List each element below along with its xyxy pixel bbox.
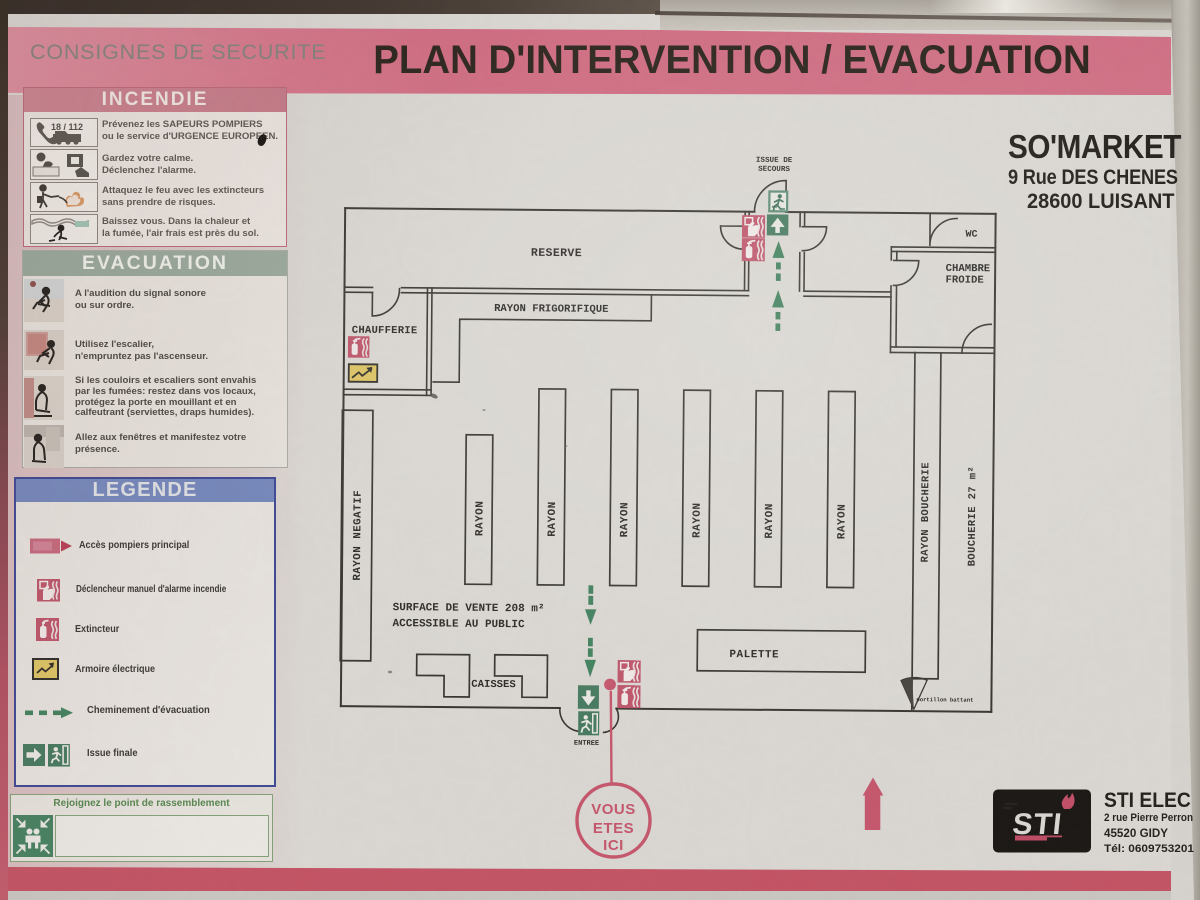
svg-text:FROIDE: FROIDE [946, 274, 984, 286]
svg-text:SECOURS: SECOURS [758, 166, 790, 174]
svg-text:RESERVE: RESERVE [531, 247, 582, 260]
svg-text:RAYON: RAYON [547, 501, 559, 537]
svg-text:ICI: ICI [603, 837, 624, 854]
svg-text:CHAMBRE: CHAMBRE [946, 263, 991, 275]
svg-text:RAYON FRIGORIFIQUE: RAYON FRIGORIFIQUE [494, 303, 609, 316]
svg-text:45520 GIDY: 45520 GIDY [1104, 827, 1168, 840]
svg-text:portillon battant: portillon battant [916, 696, 973, 703]
svg-text:RAYON: RAYON [836, 504, 848, 540]
svg-text:RAYON: RAYON [692, 502, 704, 538]
svg-text:ISSUE DE: ISSUE DE [756, 157, 793, 165]
svg-text:WC: WC [965, 230, 977, 241]
svg-text:RAYON: RAYON [474, 501, 486, 537]
svg-text:SURFACE DE VENTE 208 m²: SURFACE DE VENTE 208 m² [393, 602, 545, 615]
svg-text:2 rue Pierre Perron: 2 rue Pierre Perron [1104, 812, 1193, 824]
svg-text:ETES: ETES [593, 820, 634, 837]
svg-text:BOUCHERIE 27 m²: BOUCHERIE 27 m² [967, 466, 980, 567]
svg-text:RAYON: RAYON [764, 503, 776, 539]
svg-text:RAYON NEGATIF: RAYON NEGATIF [352, 490, 365, 581]
svg-text:18 / 112: 18 / 112 [51, 122, 83, 132]
svg-text:VOUS: VOUS [591, 801, 636, 818]
svg-text:CAISSES: CAISSES [471, 679, 516, 691]
svg-text:ACCESSIBLE AU PUBLIC: ACCESSIBLE AU PUBLIC [393, 618, 526, 631]
svg-text:PALETTE: PALETTE [729, 649, 779, 661]
svg-text:RAYON: RAYON [619, 502, 631, 538]
svg-text:ENTREE: ENTREE [574, 740, 599, 748]
svg-text:STI ELEC: STI ELEC [1104, 789, 1191, 812]
svg-text:RAYON BOUCHERIE: RAYON BOUCHERIE [920, 462, 933, 563]
svg-text:Tél: 0609753201: Tél: 0609753201 [1104, 843, 1194, 855]
svg-text:CHAUFFERIE: CHAUFFERIE [352, 325, 418, 338]
